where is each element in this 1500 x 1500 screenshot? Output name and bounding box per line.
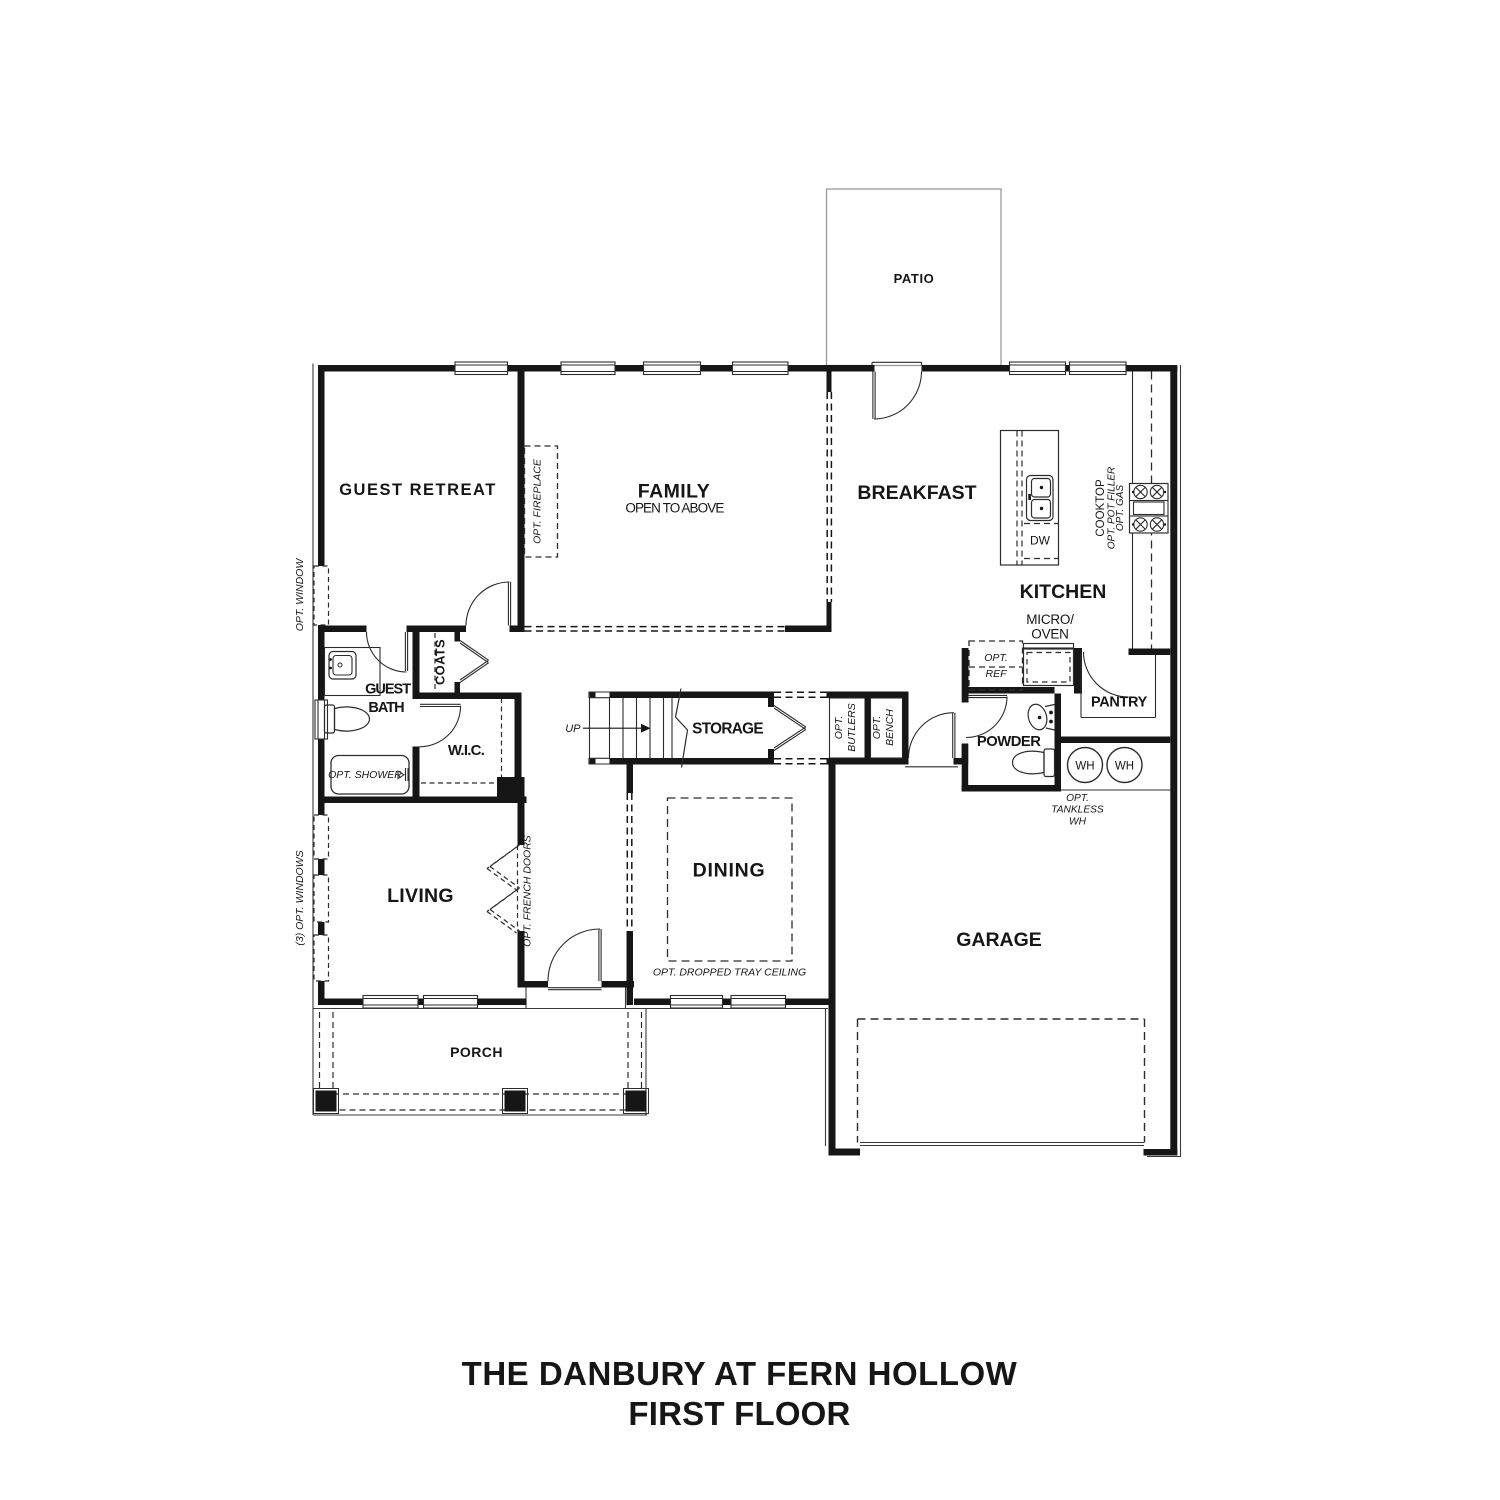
svg-text:PATIO: PATIO — [894, 271, 935, 286]
svg-text:OPT. SHOWER: OPT. SHOWER — [328, 769, 402, 781]
svg-text:OPT. DROPPED TRAY CEILING: OPT. DROPPED TRAY CEILING — [653, 967, 806, 979]
svg-text:(3) OPT. WINDOWS: (3) OPT. WINDOWS — [294, 850, 306, 945]
svg-text:KITCHEN: KITCHEN — [1020, 581, 1107, 603]
svg-text:WH: WH — [1075, 761, 1094, 773]
svg-text:OPT.: OPT. — [833, 716, 845, 740]
svg-text:PANTRY: PANTRY — [1091, 695, 1148, 711]
svg-text:OPT. FRENCH DOORS: OPT. FRENCH DOORS — [522, 835, 534, 947]
svg-text:OPT. FIREPLACE: OPT. FIREPLACE — [532, 458, 544, 544]
svg-text:LIVING: LIVING — [387, 885, 454, 907]
svg-text:BATH: BATH — [368, 700, 404, 716]
svg-text:BUTLERS: BUTLERS — [846, 703, 858, 751]
svg-text:OPT. WINDOW: OPT. WINDOW — [294, 558, 306, 632]
svg-text:OPT.: OPT. — [1066, 793, 1089, 804]
svg-text:GUEST RETREAT: GUEST RETREAT — [339, 481, 497, 499]
svg-text:FAMILY: FAMILY — [638, 481, 710, 503]
svg-text:GARAGE: GARAGE — [956, 929, 1042, 951]
svg-text:DINING: DINING — [693, 860, 766, 882]
svg-text:BREAKFAST: BREAKFAST — [857, 482, 976, 504]
svg-text:W.I.C.: W.I.C. — [448, 742, 485, 759]
svg-text:UP: UP — [565, 723, 581, 735]
svg-text:TANKLESS: TANKLESS — [1051, 805, 1104, 816]
svg-text:BENCH: BENCH — [884, 709, 896, 746]
svg-text:REF: REF — [986, 668, 1008, 680]
svg-text:OPT. GAS: OPT. GAS — [1115, 485, 1126, 532]
svg-text:POWDER: POWDER — [977, 734, 1041, 750]
svg-text:PORCH: PORCH — [450, 1044, 503, 1060]
svg-text:FIRST FLOOR: FIRST FLOOR — [628, 1395, 850, 1432]
svg-text:COOKTOP: COOKTOP — [1095, 479, 1107, 537]
svg-text:OPT.: OPT. — [984, 652, 1008, 664]
svg-text:STORAGE: STORAGE — [692, 721, 763, 738]
svg-text:DW: DW — [1030, 534, 1051, 548]
svg-text:OVEN: OVEN — [1031, 627, 1068, 642]
svg-text:COATS: COATS — [433, 639, 448, 685]
svg-text:MICRO/: MICRO/ — [1026, 612, 1074, 627]
svg-text:OPEN TO ABOVE: OPEN TO ABOVE — [625, 501, 724, 516]
svg-text:WH: WH — [1115, 761, 1134, 773]
svg-text:WH: WH — [1069, 817, 1087, 828]
svg-text:THE DANBURY AT FERN HOLLOW: THE DANBURY AT FERN HOLLOW — [462, 1355, 1018, 1392]
svg-text:OPT.: OPT. — [871, 716, 883, 740]
